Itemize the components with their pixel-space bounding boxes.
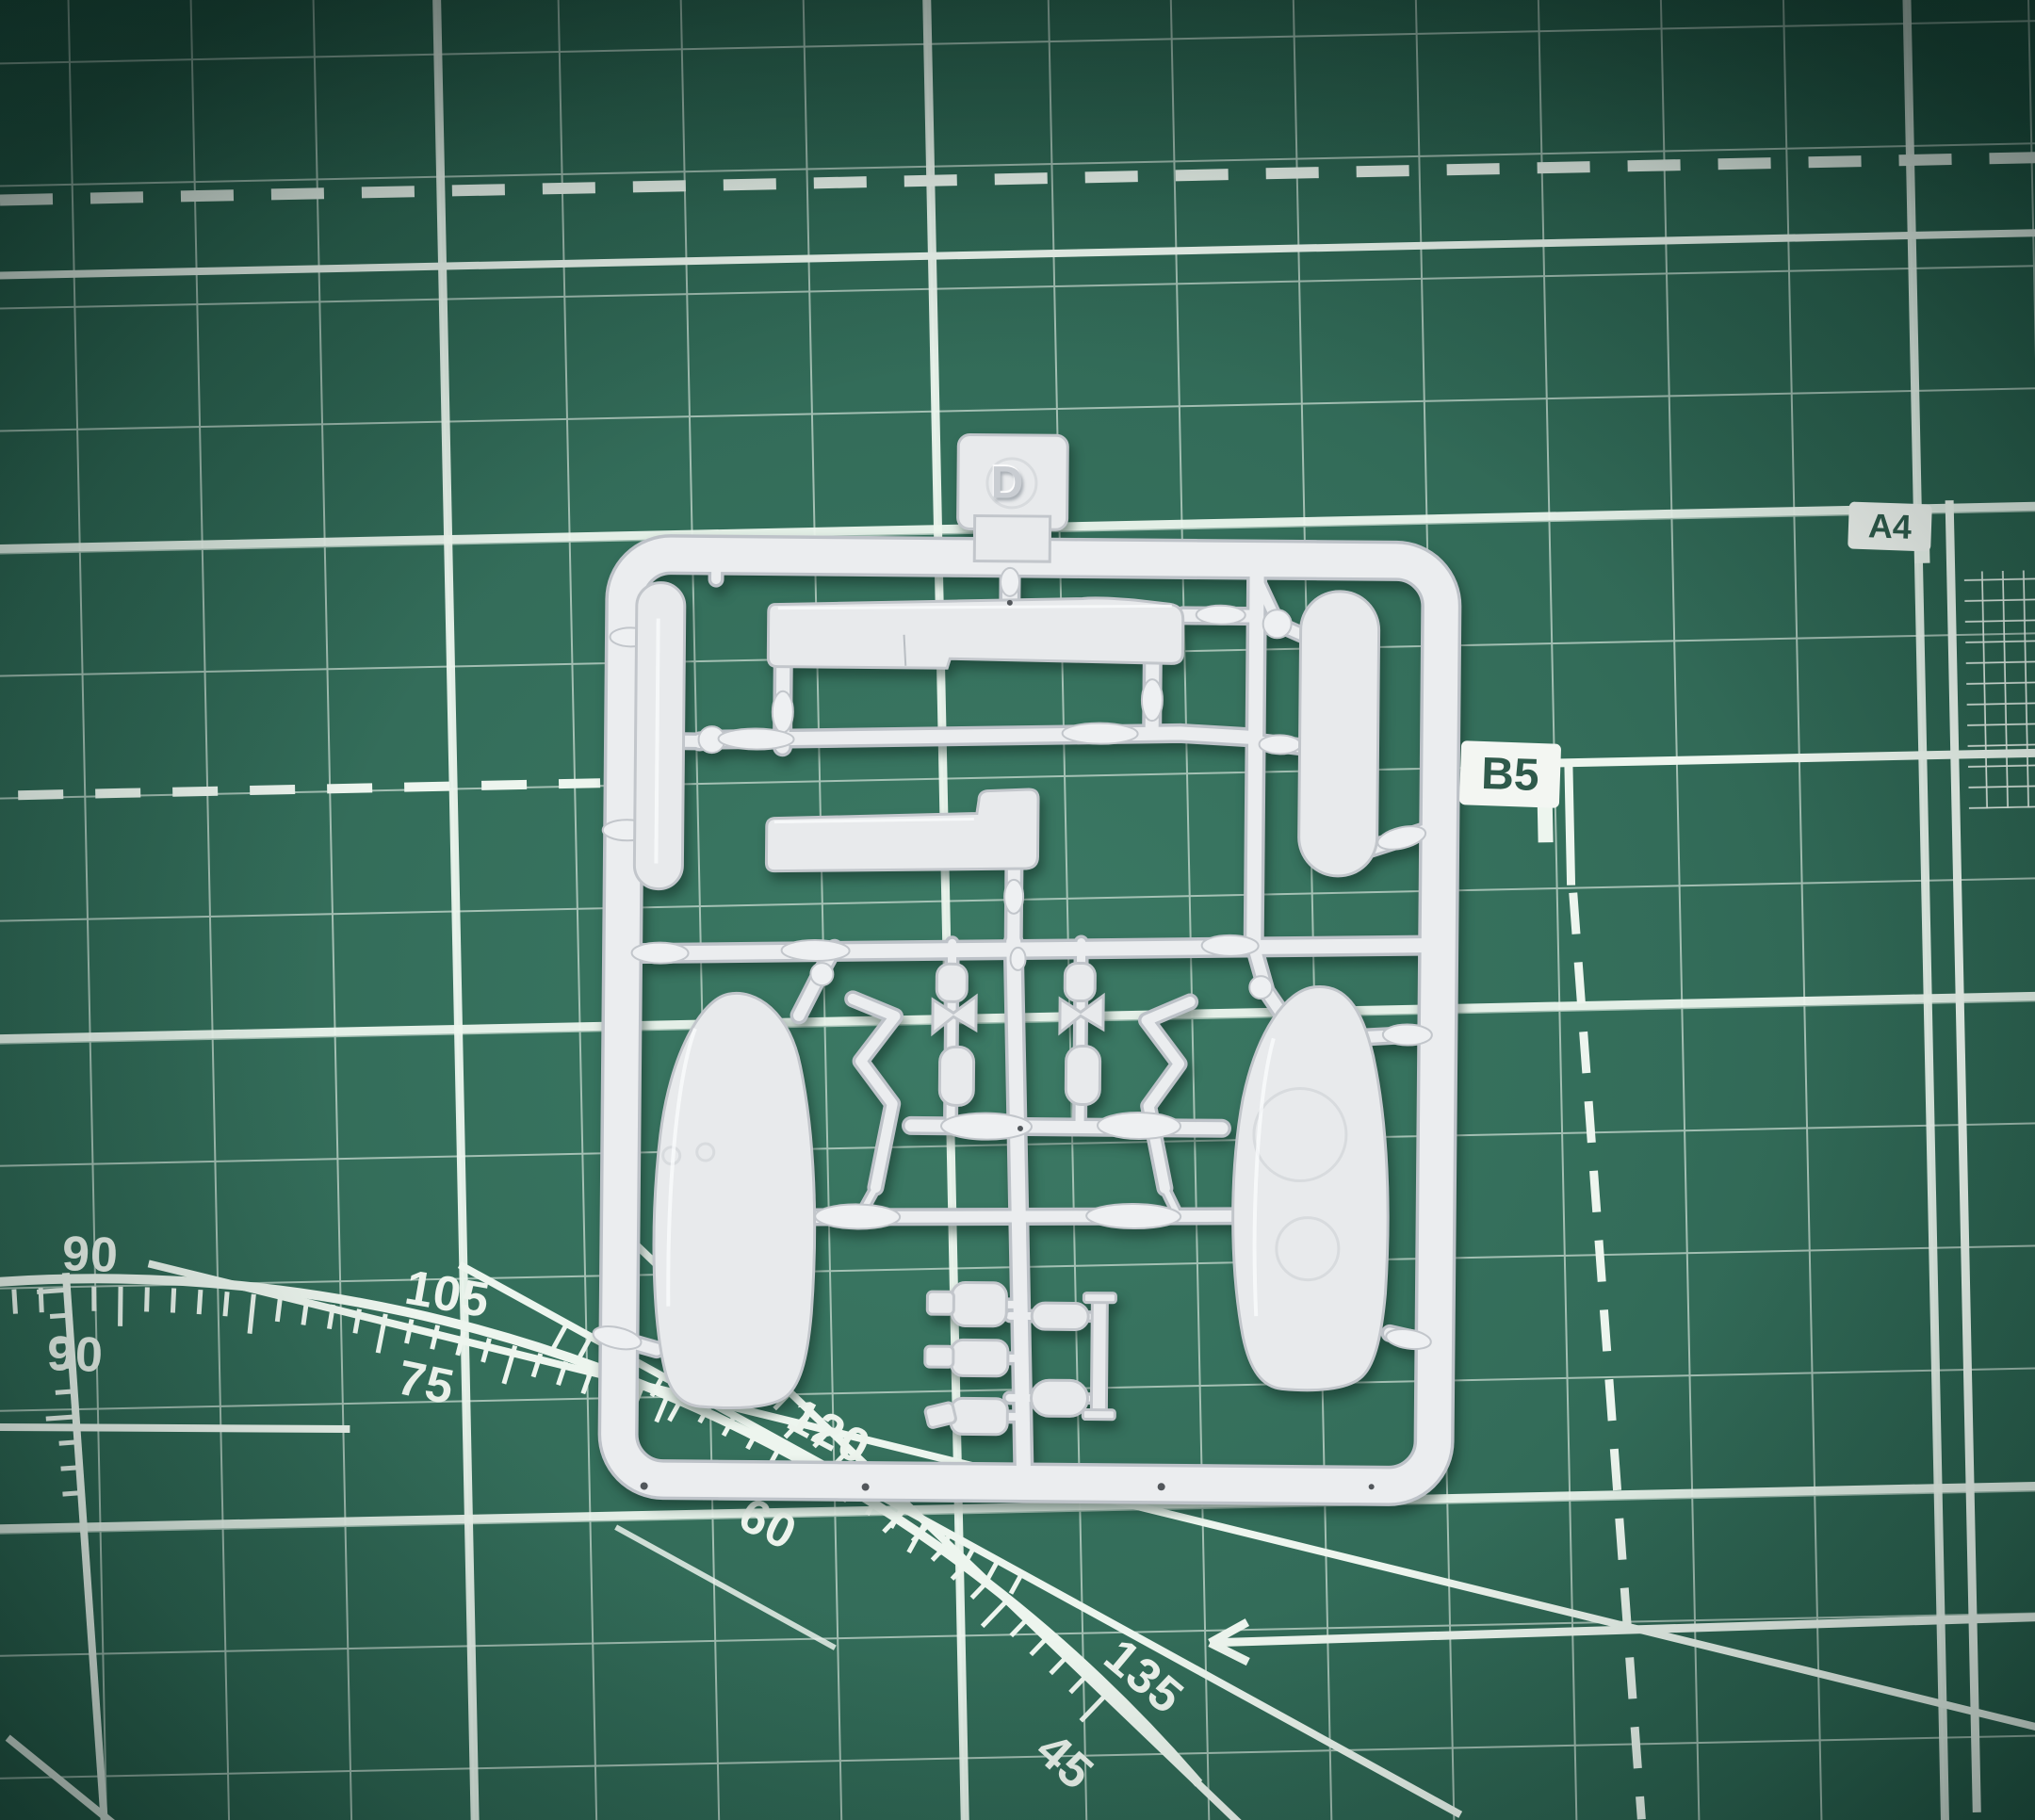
a4-size-label-text: A4 (1867, 506, 1912, 547)
part-boat (1031, 1380, 1087, 1417)
part-cylinder (939, 1047, 974, 1105)
part-boat (1032, 1303, 1088, 1330)
part-turret (952, 1340, 1008, 1376)
part-float-right (1298, 592, 1379, 877)
gate-tab-stem (974, 515, 1050, 561)
a4-size-label: A4 (1848, 501, 1932, 551)
b5-size-label-text: B5 (1480, 747, 1539, 801)
part-turret-barrel (924, 1402, 956, 1428)
b5-size-label: B5 (1459, 740, 1561, 808)
part-turret-barrel (927, 1292, 953, 1314)
part-flat-bar (1091, 1298, 1107, 1417)
photo-sprue-on-cutting-mat: 90 90 105 75 120 60 135 45 (0, 0, 2035, 1820)
gate-letter: D (991, 457, 1024, 509)
part-turret-barrel (925, 1346, 953, 1367)
part-cylinder (1065, 963, 1095, 1000)
part-cylinder (1066, 1046, 1100, 1104)
part-hull-left (652, 993, 816, 1409)
part-turret (951, 1398, 1007, 1435)
part-turret (952, 1282, 1006, 1326)
part-flat-bar-end (1083, 1293, 1115, 1303)
sprue-runner-d (0, 0, 2035, 1820)
part-flat-bar-end (1083, 1410, 1115, 1420)
part-deck-lower (766, 788, 1038, 874)
part-cylinder (936, 964, 967, 1001)
